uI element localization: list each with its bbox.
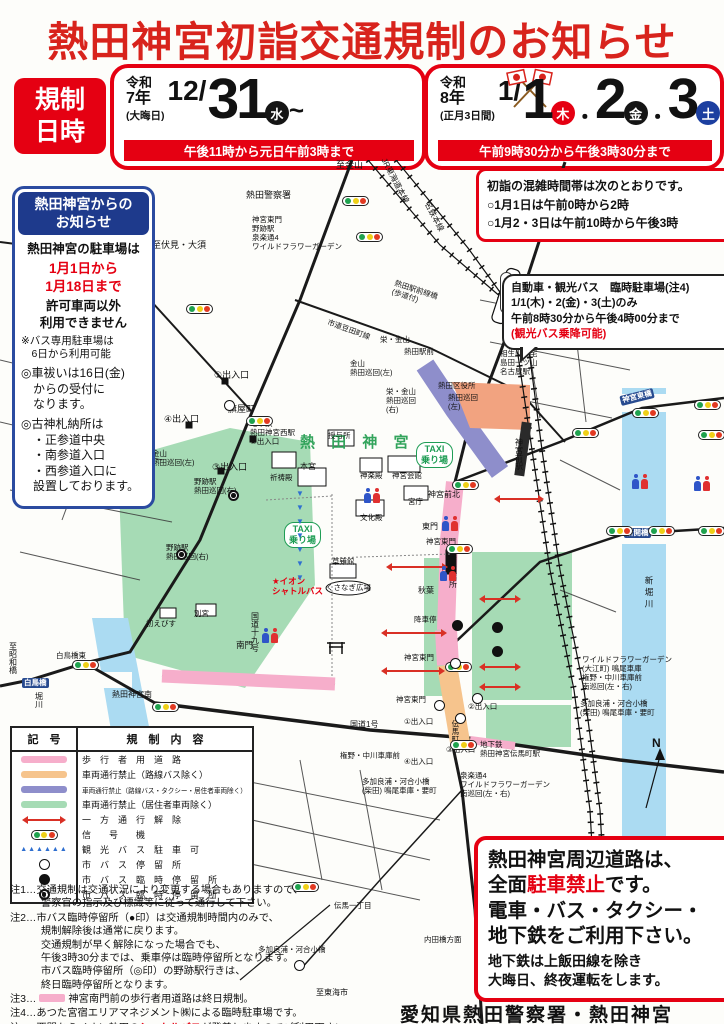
legend-label: 歩 行 者 用 道 路 — [78, 753, 252, 766]
map-label: 熱田警察署 — [246, 190, 291, 201]
pedestrian-icon — [262, 628, 269, 644]
map-label: 地下鉄 熱田神宮伝馬町駅 — [480, 741, 540, 759]
bus-stop-icon — [492, 646, 503, 657]
map-label: 白鳥橋 — [22, 678, 49, 688]
warning-line: 地下鉄をご利用下さい。 — [488, 924, 724, 949]
weekday-badge: 水 — [265, 101, 289, 125]
traffic-signal-icon — [450, 740, 477, 750]
legend-label: 車両通行禁止（路線バス除く） — [78, 768, 252, 781]
pedestrian-icon — [373, 488, 380, 504]
map-label: 至金山 — [336, 160, 363, 171]
pedestrian-icons — [442, 516, 458, 532]
one-way-arrow-icon — [24, 819, 64, 821]
note-1: 注1…交通規制は交通状況により変更する場合もありますので、 警察官の指示及び標識… — [10, 884, 358, 911]
map-label: 初えびす — [146, 620, 176, 629]
map-label: 秋葉 — [418, 586, 434, 595]
map-label: 国道1号 — [350, 720, 378, 729]
one-way-released-arrow-icon — [383, 632, 445, 634]
map-label: 祈祷殿 — [270, 474, 293, 483]
map-label: ④出入口 — [164, 414, 199, 425]
one-way-released-arrow-icon — [388, 566, 446, 568]
day-number: 3 — [668, 73, 697, 125]
traffic-signal-icon — [446, 544, 473, 554]
map-label: 神宮会館 — [392, 472, 422, 481]
bus-parking-chevron-icon: ▼ — [296, 518, 304, 526]
map-label: 栄・金山 熱田巡回 (右) — [386, 388, 416, 415]
bus-parking-chevron-icon: ▼ — [296, 574, 304, 582]
map-label: くさなぎ広場 — [326, 584, 371, 593]
map-label: 至昭和橋 — [8, 642, 17, 674]
traffic-signal-icon — [72, 660, 99, 670]
congestion-info-box: 初詣の混雑時間帯は次のとおりです。 ○1月1日は午前0時から2時 ○1月2・3日… — [476, 168, 724, 242]
pink-swatch-icon — [21, 756, 67, 763]
temporary-parking-bubble: 自動車・観光バス 臨時駐車場(注4) 1/1(木)・2(金)・3(土)のみ 午前… — [502, 274, 724, 350]
weekday-badge: 木 — [551, 101, 575, 125]
pedestrian-icons — [364, 488, 380, 504]
map-label: 市道豆田町線 — [326, 319, 371, 343]
bus-stop-icon — [176, 549, 187, 560]
map-label: ③出入口 — [212, 462, 247, 473]
map-label: 熱田巡回 (左) — [448, 394, 478, 412]
note-2: 注2…市バス臨時停留所（●印）は交通規制時間内のみで、 規制解除後は通常に戻りま… — [10, 912, 358, 992]
bubble-line: 午前8時30分から午後4時00分まで — [511, 312, 724, 327]
warning-line: 全面駐車禁止です。 — [488, 873, 724, 898]
map-label: 南門 — [236, 640, 253, 650]
pedestrian-icons — [262, 628, 278, 644]
one-way-released-arrow-icon — [496, 498, 542, 500]
legend-label: 車両通行禁止（路線バス・タクシー・居住者車両除く） — [78, 785, 252, 795]
date-box-december: 令和 7年 (大晦日) 12/ 31 水 ~ 午後11時から元日午前3時まで — [110, 64, 426, 170]
legend-label: 信 号 機 — [78, 828, 252, 841]
bus-stop-icon — [452, 620, 463, 631]
map-label: 神宮東門 — [404, 654, 434, 663]
congestion-line: 初詣の混雑時間帯は次のとおりです。 — [487, 177, 724, 196]
map-label: 本宮 — [300, 462, 316, 471]
map-label: 神宮東門 野跡駅 泉楽通4 ワイルドフラワーガーデン — [252, 216, 342, 251]
map-label: 至伏見・大須 — [152, 240, 206, 251]
map-label: 神宮前北 — [428, 490, 460, 499]
era-label: 令和 — [126, 76, 165, 90]
pedestrian-icon — [694, 476, 701, 492]
map-label: 熱田区役所 — [438, 382, 476, 391]
traffic-signal-icon — [152, 702, 179, 712]
map-label: 熱田神宮南 — [112, 690, 152, 699]
legend-label: 市 バ ス 停 留 所 — [78, 858, 252, 871]
traffic-signal-icon — [648, 526, 675, 536]
map-label: N — [652, 736, 661, 750]
pedestrian-icon — [364, 488, 371, 504]
bus-parking-chevron-icon: ▼ — [296, 532, 304, 540]
bus-parking-chevron-icon: ▼ — [296, 490, 304, 498]
pedestrian-icon — [271, 628, 278, 644]
map-label: 降車停 — [414, 616, 437, 625]
map-label: ワイルドフラワーガーデン (大江町) 鳴尾車庫 権野・中川車庫前 南巡回(左・右… — [582, 656, 672, 691]
map-label: 神宮東橋 — [619, 388, 654, 405]
map-label: ②出入口 — [468, 703, 497, 712]
map-label: 金山 熱田巡回(左) — [350, 360, 393, 378]
traffic-signal-icon — [452, 480, 479, 490]
tilde: ~ — [289, 95, 304, 126]
map-label: 別宮 — [194, 610, 209, 619]
map-label: 授与所 — [328, 432, 351, 441]
traffic-signal-icon — [342, 196, 369, 206]
bus-stop-icon — [228, 490, 239, 501]
warning-subline: 地下鉄は上飯田線を除き 大晦日、終夜運転をします。 — [488, 952, 724, 990]
legend-row: 信 号 機 — [12, 827, 252, 842]
purple-swatch-icon — [21, 786, 67, 793]
map-label: 野跡駅 熱田巡回(右) — [166, 544, 209, 562]
map-label: 神楽殿 — [360, 472, 383, 481]
traffic-signal-icon — [356, 232, 383, 242]
day-number: 1 — [522, 73, 551, 125]
orange-swatch-icon — [21, 771, 67, 778]
map-label: ④出入口 — [404, 758, 433, 767]
map-label: 宮庁 — [408, 498, 423, 507]
era-note: (大晦日) — [126, 111, 165, 123]
map-label: 熱田駅前線橋 (歩道付) — [390, 279, 438, 310]
pedestrian-icon — [449, 566, 456, 582]
bus-chevron-icons: ▲▲▲▲▲▲ — [20, 846, 68, 853]
bus-stop-icon — [455, 713, 466, 724]
notice-period: 1月1日から 1月18日まで — [21, 260, 146, 295]
traffic-signal-icon — [572, 428, 599, 438]
note-3: 注3…神宮南門前の歩行者用道路は終日規制。 — [10, 993, 358, 1006]
pedestrian-icon — [641, 474, 648, 490]
era-year: 8年 — [440, 90, 495, 108]
one-way-released-arrow-icon — [481, 666, 519, 668]
no-parking-warning-box: 熱田神宮周辺道路は、 全面駐車禁止です。 電車・バス・タクシー・ 地下鉄をご利用… — [474, 836, 724, 1002]
traffic-signal-icon — [694, 400, 721, 410]
pedestrian-icon — [451, 516, 458, 532]
map-label: 熱田駅前 — [404, 348, 434, 357]
warning-line: 電車・バス・タクシー・ — [488, 899, 724, 924]
day-number: 31 — [207, 73, 264, 125]
traffic-signal-icon — [606, 526, 633, 536]
traffic-signal-icon — [31, 830, 58, 840]
legend-label: 観 光 バ ス 駐 車 可 — [78, 843, 252, 856]
one-way-released-arrow-icon — [383, 670, 443, 672]
day-number: 2 — [595, 73, 624, 125]
map-label: 神宮東門 — [396, 696, 426, 705]
traffic-signal-icon — [246, 416, 273, 426]
traffic-regulation-map: 至金山熱田警察署神宮東門 野跡駅 泉楽通4 ワイルドフラワーガーデン至伏見・大須… — [0, 160, 724, 1024]
pedestrian-icons — [632, 474, 648, 490]
bubble-line: 自動車・観光バス 臨時駐車場(注4) — [511, 281, 724, 296]
shrine-notice-header: 熱田神宮からの お知らせ — [18, 192, 149, 235]
notice-line: 熱田神宮の駐車場は — [21, 241, 146, 257]
time-strip-january: 午前9時30分から午後3時30分まで — [438, 140, 712, 161]
bus-parking-chevron-icon: ▼ — [296, 546, 304, 554]
one-way-released-arrow-icon — [481, 598, 519, 600]
notice-item: ◎古神札納所は ・正参道中央 ・南参道入口 ・西参道入口に 設置しております。 — [21, 417, 146, 495]
weekday-badge: 金 — [624, 101, 648, 125]
bus-stop-icon — [224, 400, 235, 411]
pedestrian-icon — [440, 566, 447, 582]
green-swatch-icon — [21, 801, 67, 808]
pedestrian-icons — [694, 476, 710, 492]
warning-line: 熱田神宮周辺道路は、 — [488, 848, 724, 873]
map-label: 金山 熱田巡回(左) — [152, 450, 195, 468]
map-label: 泉楽通4 ワイルドフラワーガーデン 南巡回(左・右) — [460, 772, 550, 799]
bus-stop-icon — [450, 658, 461, 669]
map-label: JR東海道本線 — [379, 157, 411, 205]
issuer-footer: 愛知県熱田警察署・熱田神宮 — [400, 1000, 673, 1024]
map-label: 新堀川 — [644, 576, 654, 611]
map-label: 権野・中川車庫前 — [340, 752, 400, 761]
era-label: 令和 — [440, 76, 495, 90]
legend-header-content: 規 制 内 容 — [78, 728, 252, 750]
legend-row: 一 方 通 行 解 除 — [12, 812, 252, 827]
map-label: 名鉄本線 — [422, 200, 445, 233]
era-note: (正月3日間) — [440, 111, 495, 123]
bus-stop-icon — [472, 693, 483, 704]
notice-item: ◎車祓いは16日(金) からの受付に なります。 — [21, 366, 146, 413]
pedestrian-icons — [440, 566, 456, 582]
pedestrian-icon — [703, 476, 710, 492]
map-label: 堀川 — [34, 692, 43, 708]
map-label: 熱 田 神 宮 — [300, 434, 415, 452]
map-label: 多加良浦・河合小橋 (柴田) 鳴尾車庫・要町 — [580, 700, 655, 718]
pedestrian-icon — [632, 474, 639, 490]
taxi-stand-label: TAXI 乗り場 — [416, 442, 453, 468]
schedule-label-box: 規制 日時 — [14, 78, 106, 154]
legend-header-symbol: 記 号 — [12, 728, 78, 750]
map-label: 文化殿 — [360, 514, 383, 523]
bus-parking-chevron-icon: ▼ — [296, 560, 304, 568]
bubble-line: 1/1(木)・2(金)・3(土)のみ — [511, 296, 724, 311]
congestion-line: ○1月1日は午前0時から2時 — [487, 196, 724, 215]
page-title: 熱田神宮初詣交通規制のお知らせ — [0, 8, 724, 68]
legend-row: 車両通行禁止（路線バス除く） — [12, 767, 252, 782]
map-label: 東門 — [422, 522, 438, 531]
pink-swatch-icon — [39, 994, 65, 1002]
time-strip-december: 午後11時から元日午前3時まで — [124, 140, 414, 161]
bus-parking-chevron-icon: ▼ — [296, 504, 304, 512]
legend-row: ▲▲▲▲▲▲観 光 バ ス 駐 車 可 — [12, 842, 252, 857]
legend-label: 車両通行禁止（居住者車両除く） — [78, 798, 252, 811]
traffic-signal-icon — [698, 430, 724, 440]
traffic-signal-icon — [186, 304, 213, 314]
map-label: ①出入口 — [404, 718, 433, 727]
bus-stop-icon — [434, 700, 445, 711]
legend-label: 一 方 通 行 解 除 — [78, 813, 252, 826]
congestion-line: ○1月2・3日は午前10時から午後3時 — [487, 214, 724, 233]
map-label: 栄・金山 — [380, 336, 410, 345]
traffic-signal-icon — [698, 526, 724, 536]
map-label: 内田橋方面 — [424, 936, 462, 945]
legend-row: 車両通行禁止（路線バス・タクシー・居住者車両除く） — [12, 782, 252, 797]
legend-row: 市 バ ス 停 留 所 — [12, 857, 252, 872]
traffic-signal-icon — [632, 408, 659, 418]
pedestrian-icon — [442, 516, 449, 532]
map-notes: 注1…交通規制は交通状況により変更する場合もありますので、 警察官の指示及び標識… — [10, 884, 358, 1024]
era-year: 7年 — [126, 90, 165, 108]
bus-stop-icon — [492, 622, 503, 633]
bubble-line-red: (観光バス乗降可能) — [511, 327, 724, 342]
map-label: ①出入口 — [214, 370, 249, 381]
bus-stop-icon — [39, 859, 50, 870]
map-label: 神宮前駅 — [514, 438, 523, 470]
map-label: 多加良浦・河合小橋 (柴田) 鳴尾車庫・要町 — [362, 778, 437, 796]
notice-note: ※バス専用駐車場は 6日から利用可能 — [21, 335, 146, 362]
map-legend: 記 号 規 制 内 容 歩 行 者 用 道 路車両通行禁止（路線バス除く）車両通… — [10, 726, 254, 904]
shrine-notice-box: 熱田神宮からの お知らせ 熱田神宮の駐車場は 1月1日から 1月18日まで 許可… — [12, 186, 155, 509]
notice-line: 許可車両以外 利用できません — [21, 298, 146, 331]
month-label: 12/ — [168, 75, 207, 107]
flyer-page: 熱田神宮初詣交通規制のお知らせ 規制 日時 令和 7年 (大晦日) 12/ 31… — [0, 0, 724, 1024]
weekday-badge: 土 — [696, 101, 720, 125]
note-4: 注4…あつた宮宿エリアマネジメント㈱による臨時駐車場です。 — [10, 1007, 358, 1020]
legend-row: 歩 行 者 用 道 路 — [12, 752, 252, 767]
legend-row: 車両通行禁止（居住者車両除く） — [12, 797, 252, 812]
one-way-released-arrow-icon — [481, 686, 519, 688]
map-label: 草薙館 — [332, 558, 355, 567]
date-box-january: 令和 8年 (正月3日間) 1/ 1 木 ・ 2 金 ・ 3 土 午前9 — [424, 64, 724, 170]
